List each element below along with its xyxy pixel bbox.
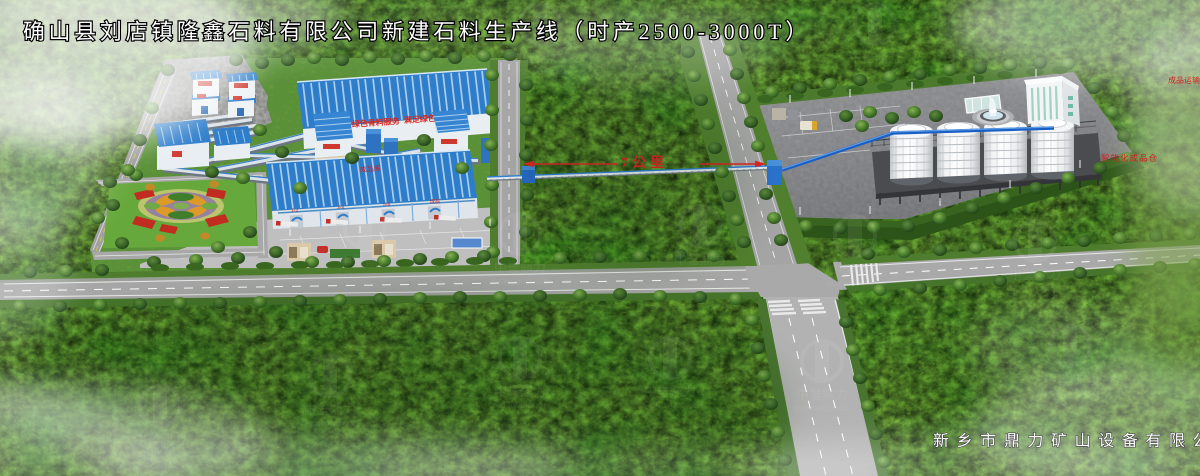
svg-text:成品运输: 成品运输 <box>1168 76 1200 85</box>
svg-text:智能化成品仓: 智能化成品仓 <box>1101 153 1158 163</box>
svg-text:确山县刘店镇隆鑫石料有限公司新建石料生产线（时产2500-3: 确山县刘店镇隆鑫石料有限公司新建石料生产线（时产2500-3000T） <box>23 19 811 44</box>
svg-text:1-2: 1-2 <box>291 208 298 214</box>
svg-text:新乡市鼎力矿山设备有限公: 新乡市鼎力矿山设备有限公 <box>933 432 1200 450</box>
svg-text:成品库: 成品库 <box>360 165 382 174</box>
svg-text:成品: 成品 <box>430 198 440 205</box>
svg-text:5-6: 5-6 <box>383 202 390 208</box>
svg-text:3-4: 3-4 <box>337 205 344 211</box>
